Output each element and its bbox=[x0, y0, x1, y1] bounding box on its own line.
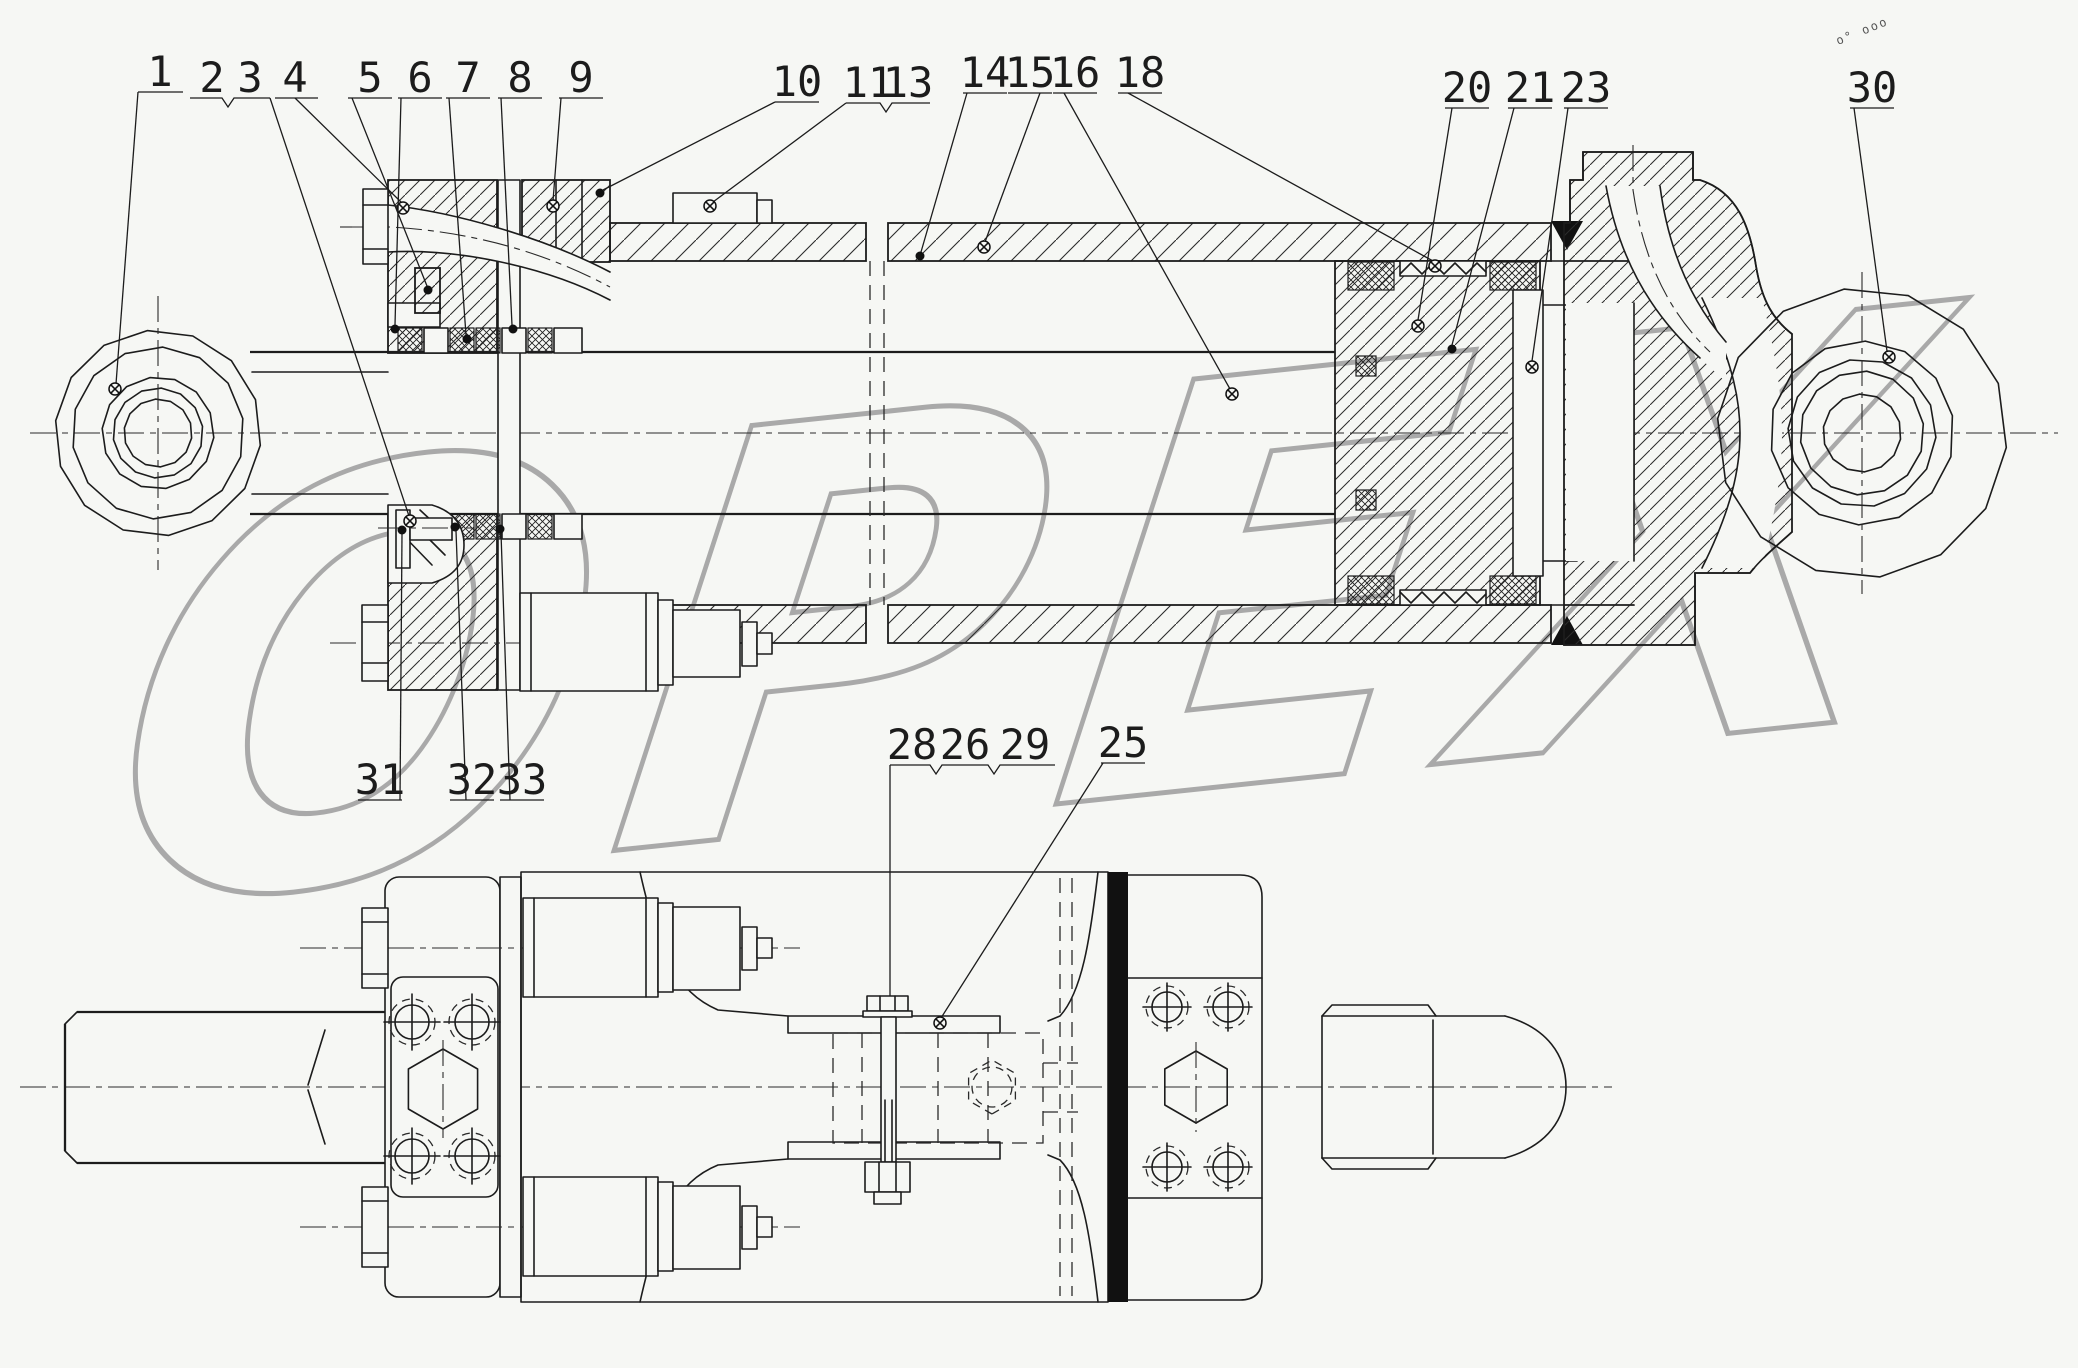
callout-10: 10 bbox=[596, 57, 823, 198]
part-number-32: 32 bbox=[447, 755, 498, 804]
head-plate-bottom bbox=[384, 877, 521, 1297]
part-number-5: 5 bbox=[357, 53, 382, 102]
piston-spacer bbox=[1513, 290, 1543, 576]
part-number-21: 21 bbox=[1505, 63, 1556, 112]
callout-1: 1 bbox=[109, 47, 183, 395]
stamp: o° ooo bbox=[1834, 14, 1891, 48]
leader-dot-icon bbox=[596, 189, 605, 198]
leader-dot-icon bbox=[496, 525, 505, 534]
part-number-3: 3 bbox=[237, 53, 262, 102]
bolt-hole bbox=[1204, 1143, 1252, 1191]
part-number-33: 33 bbox=[497, 755, 548, 804]
callout-26: 26 bbox=[940, 720, 991, 769]
head-port-plug bbox=[340, 189, 388, 264]
part-number-25: 25 bbox=[1098, 718, 1149, 767]
leader-dot-icon bbox=[1448, 345, 1457, 354]
part-number-16: 16 bbox=[1050, 48, 1101, 97]
clamp-assembly bbox=[788, 996, 1078, 1204]
leader-dot-icon bbox=[451, 523, 460, 532]
part-number-8: 8 bbox=[507, 53, 532, 102]
leader-dot-icon bbox=[916, 252, 925, 261]
bolt-hole bbox=[1143, 983, 1191, 1031]
part-number-23: 23 bbox=[1561, 63, 1612, 112]
part-number-9: 9 bbox=[568, 53, 593, 102]
part-number-1: 1 bbox=[147, 47, 172, 96]
part-number-29: 29 bbox=[1000, 720, 1051, 769]
callout-13: 13 bbox=[883, 58, 934, 107]
part-number-15: 15 bbox=[1005, 48, 1056, 97]
leader-dot-icon bbox=[463, 335, 472, 344]
leader-dot-icon bbox=[398, 526, 407, 535]
stamp-text: o° ooo bbox=[1834, 14, 1891, 48]
part-number-13: 13 bbox=[883, 58, 934, 107]
part-number-20: 20 bbox=[1442, 63, 1493, 112]
callout-3: 3 bbox=[237, 53, 262, 102]
leader-dot-icon bbox=[424, 286, 433, 295]
part-number-6: 6 bbox=[407, 53, 432, 102]
port-fitting-bottom bbox=[300, 1177, 800, 1276]
part-number-26: 26 bbox=[940, 720, 991, 769]
piston bbox=[1335, 261, 1540, 605]
callout-29: 29 bbox=[1000, 720, 1051, 769]
part-number-30: 30 bbox=[1847, 63, 1898, 112]
port-fitting-top bbox=[300, 898, 800, 997]
part-number-7: 7 bbox=[455, 53, 480, 102]
part-number-4: 4 bbox=[282, 53, 307, 102]
part-number-2: 2 bbox=[199, 53, 224, 102]
leader-dot-icon bbox=[391, 325, 400, 334]
weld-band bbox=[1108, 872, 1128, 1302]
bolt-hole bbox=[1204, 983, 1252, 1031]
part-number-28: 28 bbox=[887, 720, 938, 769]
part-number-31: 31 bbox=[355, 755, 406, 804]
part-number-10: 10 bbox=[772, 57, 823, 106]
leader-dot-icon bbox=[509, 325, 518, 334]
bolt-hole bbox=[1143, 1143, 1191, 1191]
part-number-18: 18 bbox=[1115, 48, 1166, 97]
technical-drawing: OPEX o° ooo bbox=[0, 0, 2078, 1368]
drawing-sheet: OPEX o° ooo bbox=[0, 0, 2078, 1368]
part-number-14: 14 bbox=[960, 48, 1011, 97]
